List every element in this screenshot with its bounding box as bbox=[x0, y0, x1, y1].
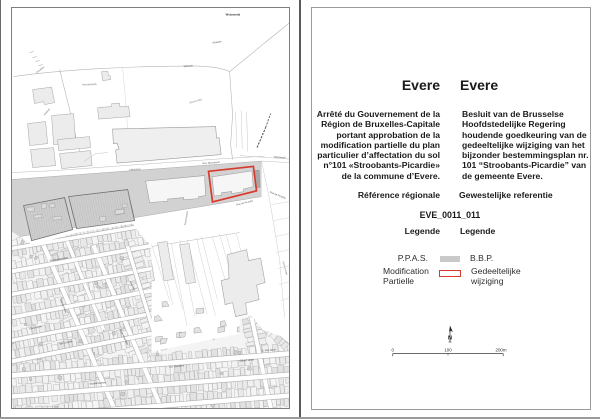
svg-text:Permekepark: Permekepark bbox=[82, 83, 97, 87]
svg-text:Kerkhof: Kerkhof bbox=[43, 108, 51, 116]
svg-text:0: 0 bbox=[391, 348, 394, 353]
svg-text:Trammuseum: Trammuseum bbox=[184, 211, 190, 226]
svg-text:Woluwe: Woluwe bbox=[183, 63, 193, 68]
svg-text:N: N bbox=[448, 336, 452, 342]
svg-text:Woluwe: Woluwe bbox=[212, 39, 222, 44]
svg-text:Woluwedal: Woluwedal bbox=[226, 13, 241, 17]
svg-text:Genevestraat: Genevestraat bbox=[282, 261, 289, 275]
svg-text:100: 100 bbox=[444, 348, 452, 353]
svg-text:Rue de Picardie: Rue de Picardie bbox=[269, 191, 287, 200]
svg-text:Soccer veld: Soccer veld bbox=[189, 98, 202, 105]
svg-text:200m: 200m bbox=[496, 348, 507, 353]
